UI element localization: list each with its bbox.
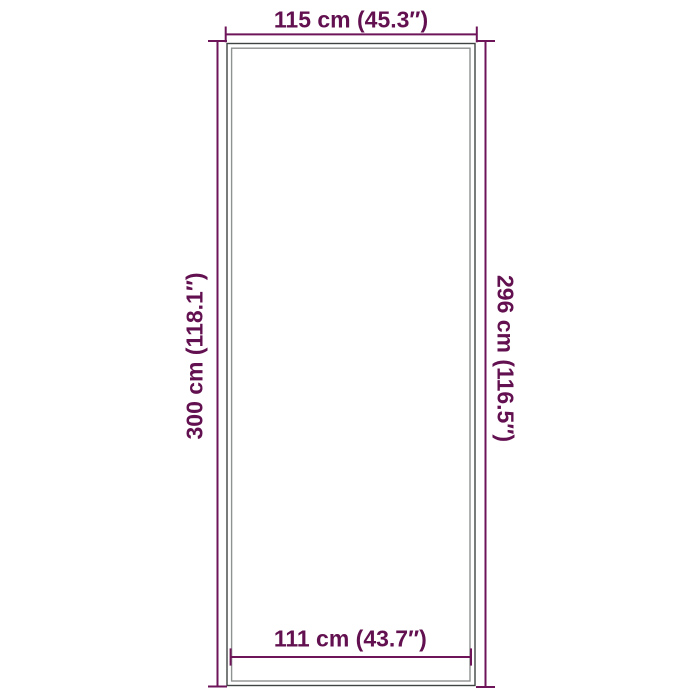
svg-text:111 cm (43.7″): 111 cm (43.7″) — [274, 626, 427, 652]
svg-text:300 cm (118.1″): 300 cm (118.1″) — [182, 272, 208, 439]
svg-text:296 cm (116.5″): 296 cm (116.5″) — [493, 275, 519, 442]
svg-text:115 cm (45.3″): 115 cm (45.3″) — [274, 6, 428, 32]
